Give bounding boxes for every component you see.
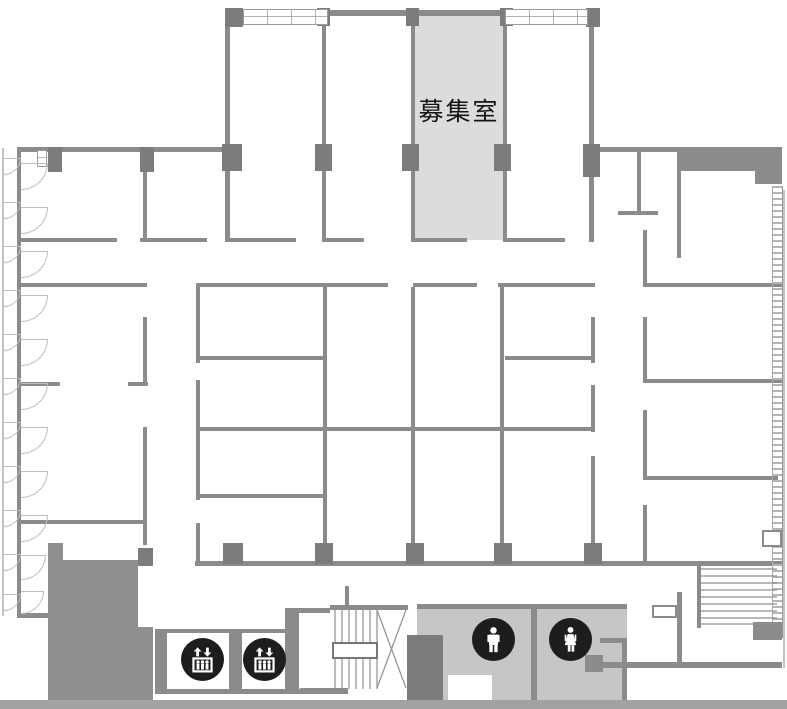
pillar <box>402 144 419 171</box>
window <box>505 9 588 25</box>
door-arc <box>21 471 48 498</box>
wall <box>285 608 330 613</box>
service-core <box>48 560 138 627</box>
wall <box>322 16 326 242</box>
male-restroom-icon <box>472 618 515 661</box>
wall <box>417 604 627 609</box>
wall-block <box>407 635 443 701</box>
pillar <box>48 147 62 172</box>
wall <box>225 10 230 242</box>
wall <box>591 456 595 543</box>
wall <box>323 287 327 563</box>
wall <box>411 16 415 242</box>
pillar <box>406 543 424 564</box>
wall <box>643 476 778 480</box>
pillar <box>406 8 419 26</box>
wall <box>643 505 647 563</box>
wall <box>618 211 658 215</box>
wall <box>643 317 647 383</box>
service-core <box>48 627 153 700</box>
staircase-center <box>330 605 408 693</box>
restroom-stall <box>448 675 492 700</box>
wall <box>411 287 415 545</box>
floor-plan: 募集室 <box>0 0 787 709</box>
service-core <box>48 543 63 560</box>
wall <box>155 629 167 691</box>
wall <box>322 238 364 242</box>
wall <box>196 283 388 287</box>
wall <box>196 523 200 563</box>
window <box>243 9 328 25</box>
wall <box>498 283 595 287</box>
wall <box>285 608 299 691</box>
wall <box>677 592 682 667</box>
door-arc <box>21 339 48 366</box>
wall <box>196 427 595 431</box>
wall <box>411 238 467 242</box>
wall <box>503 238 565 242</box>
wall <box>600 662 782 668</box>
wall <box>503 16 507 242</box>
facade-line <box>783 190 785 668</box>
elevator-icon <box>181 638 224 681</box>
wall <box>196 494 327 498</box>
door-frame <box>652 605 677 618</box>
wall <box>140 238 207 242</box>
wall <box>228 238 296 242</box>
wall <box>622 638 627 700</box>
pillar <box>583 144 600 177</box>
wall <box>20 238 117 242</box>
wall <box>594 147 677 152</box>
wall <box>196 356 327 360</box>
vacant-room[interactable] <box>415 14 503 240</box>
pillar <box>222 144 242 171</box>
wall <box>505 356 593 360</box>
wall <box>167 629 287 633</box>
wall <box>196 287 200 363</box>
wall <box>229 629 242 691</box>
door-arc <box>21 163 48 190</box>
door-arc <box>21 251 48 278</box>
wall <box>155 689 303 694</box>
wall <box>413 283 477 287</box>
wall <box>18 283 147 287</box>
female-restroom-icon <box>549 618 592 661</box>
wall <box>195 561 782 566</box>
pillar <box>586 8 600 27</box>
wall <box>643 379 782 383</box>
wall <box>196 380 200 500</box>
door-arc <box>21 555 46 580</box>
wall <box>677 171 681 258</box>
wall <box>643 410 647 478</box>
pillar <box>494 543 512 564</box>
wall <box>591 317 595 363</box>
pillar <box>140 147 154 172</box>
staircase-right <box>697 565 780 628</box>
wall <box>591 385 595 432</box>
vacant-room-label: 募集室 <box>409 97 509 127</box>
door-arc <box>21 383 48 410</box>
pillar <box>315 543 333 564</box>
door-arc <box>21 295 48 322</box>
pillar <box>584 543 602 564</box>
wall <box>531 607 537 700</box>
pillar <box>315 144 332 171</box>
wall <box>643 283 782 287</box>
pillar <box>138 548 153 566</box>
wall <box>143 427 147 545</box>
pillar <box>494 144 511 171</box>
wall <box>643 230 647 287</box>
elevator-icon <box>243 638 286 681</box>
pillar <box>225 8 243 27</box>
wall <box>637 150 641 213</box>
wall <box>500 287 504 545</box>
door-arc <box>21 427 48 454</box>
door-frame <box>762 530 782 547</box>
baseline-wall <box>0 700 787 709</box>
door-arc <box>21 591 44 614</box>
wall <box>755 147 782 184</box>
door-arc <box>21 515 48 542</box>
door-arc <box>21 207 48 234</box>
wall <box>143 317 147 383</box>
wall <box>589 10 594 242</box>
pillar <box>223 543 243 564</box>
